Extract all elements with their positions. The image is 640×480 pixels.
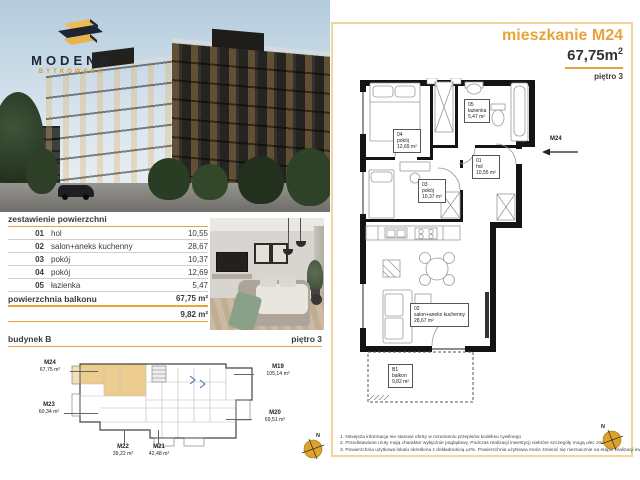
area-value: 67,75m (567, 47, 618, 64)
room-label-04: 04 pokój 12,69 m² (393, 129, 421, 153)
row-number: 01 (8, 229, 51, 238)
hall-wardrobe (497, 194, 515, 220)
compass-rose (300, 435, 326, 461)
row-value: 5,47 (166, 281, 208, 290)
row-name: łazienka (51, 281, 166, 290)
lamp-shade (283, 249, 293, 255)
room-label-01: 01 hol 10,55 m² (472, 155, 500, 179)
tree (238, 156, 284, 204)
entrance-arrow-icon (542, 149, 578, 156)
row-value: 28,67 (166, 242, 208, 251)
entrance-label: M24 (550, 136, 562, 142)
toilet (491, 104, 505, 126)
kitchen-counter (366, 226, 460, 240)
logo-name: MODENA (12, 53, 132, 68)
wardrobe (435, 82, 453, 132)
modena-logo: MODENA BYTKOWSKA (12, 16, 132, 80)
apartment-label-m20: M20 69,51 m² (252, 410, 298, 424)
single-bed (369, 170, 394, 218)
wall-frame (254, 243, 271, 264)
area-table-title: zestawienie powierzchni (8, 214, 208, 227)
leader-line (64, 413, 98, 414)
apartment-area: 67,75m2 (502, 46, 623, 64)
apartment-label-m21: M21 42,48 m² (138, 444, 180, 458)
panel-header: mieszkanie M24 67,75m2 piętro 3 (502, 27, 623, 81)
row-name: pokój (51, 255, 166, 264)
row-number: 03 (8, 255, 51, 264)
table-row: 02 salon+aneks kuchenny 28,67 (8, 240, 208, 253)
building-photo: MODENA BYTKOWSKA (0, 0, 330, 212)
room-label-b1: B1 balkon 9,82 m² (388, 364, 413, 388)
building-floor-row: budynek B piętro 3 (8, 334, 322, 347)
balcony-area-section: powierzchnia balkonu 9,82 m² (8, 294, 208, 322)
room-label-02: 02 salon+aneks kuchenny 28,67 m² (410, 303, 469, 327)
room-label-03: 03 pokój 10,37 m² (418, 179, 446, 203)
tv (485, 292, 489, 338)
tree (26, 148, 58, 194)
lamp-shade (296, 241, 306, 247)
row-number: 04 (8, 268, 51, 277)
pillow (279, 277, 296, 287)
ceiling (210, 218, 324, 231)
leader-line (226, 419, 252, 420)
balcony (368, 352, 473, 402)
row-number: 05 (8, 281, 51, 290)
row-value: 12,69 (166, 268, 208, 277)
row-number: 02 (8, 242, 51, 251)
area-table: zestawienie powierzchni 01 hol 10,55 02 … (8, 214, 208, 306)
leader-line (234, 374, 254, 375)
room-label-05: 05 łazienka 5,47 m² (464, 99, 490, 123)
logo-blocks-icon (12, 16, 132, 46)
north-label: N (601, 424, 605, 430)
table-row: 05 łazienka 5,47 (8, 279, 208, 292)
tree (148, 158, 190, 200)
bathtub (511, 83, 528, 141)
disclaimer-text: 1. Niniejsza informacja nie stanowi ofer… (340, 435, 592, 454)
row-value: 10,55 (166, 229, 208, 238)
disclaimer-line: 2. Przedstawione rzuty mają charakter wy… (340, 441, 592, 447)
compass-icon: N (599, 426, 625, 452)
tree (192, 164, 228, 200)
apartment-label-m19: M19 105,14 m² (254, 364, 302, 378)
car-wheel (62, 194, 68, 200)
area-sup: 2 (618, 46, 623, 56)
row-name: salon+aneks kuchenny (51, 242, 166, 251)
leader-line (124, 430, 125, 444)
leader-line (70, 371, 98, 372)
compass-icon: N (300, 435, 326, 461)
flyer-page: MODENA BYTKOWSKA zestawienie powierzchni… (0, 0, 640, 480)
apartment-floorplan (345, 78, 590, 408)
sofa (383, 290, 412, 343)
rug (383, 260, 400, 277)
header-rule (565, 67, 623, 69)
row-value: 10,37 (166, 255, 208, 264)
car (58, 185, 94, 197)
tv-console (212, 274, 252, 279)
pillow (260, 277, 277, 287)
north-label: N (316, 433, 320, 439)
apartment-label-m24: M24 67,75 m² (28, 360, 72, 374)
interior-photo (210, 218, 324, 330)
row-name: hol (51, 229, 166, 238)
staircase (152, 366, 166, 382)
apartment-title: mieszkanie M24 (502, 27, 623, 45)
balcony-section-title: powierzchnia balkonu (8, 294, 208, 307)
pendant-lamp (300, 218, 301, 242)
building-label: budynek B (8, 334, 51, 344)
leader-line (158, 430, 159, 444)
disclaimer-line: 3. Powierzchnia użytkowa lokalu określon… (340, 448, 592, 454)
car-wheel (83, 194, 89, 200)
balcony-area-value: 9,82 m² (8, 307, 208, 322)
tv (216, 252, 248, 272)
duvet (256, 284, 308, 314)
logo-subtitle: BYTKOWSKA (12, 69, 132, 75)
table-row: 04 pokój 12,69 (8, 266, 208, 279)
row-name: pokój (51, 268, 166, 277)
table-row: 03 pokój 10,37 (8, 253, 208, 266)
floor-label: piętro 3 (291, 334, 322, 344)
side-table (311, 294, 322, 305)
tree (286, 148, 330, 206)
table-row: 01 hol 10,55 (8, 227, 208, 240)
pendant-lamp (288, 218, 289, 250)
